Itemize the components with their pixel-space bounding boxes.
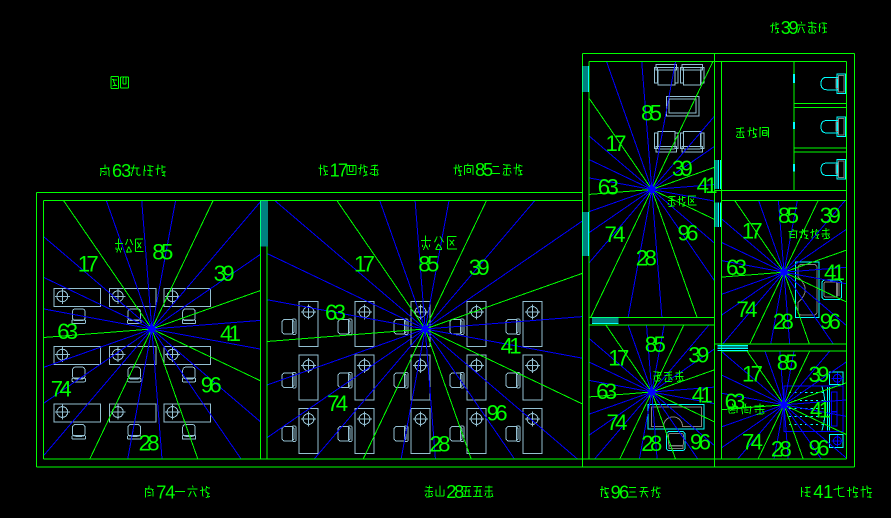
svg-text:39: 39 <box>214 261 235 286</box>
svg-text:28: 28 <box>636 245 657 270</box>
svg-text:5: 5 <box>483 160 493 180</box>
svg-text:74: 74 <box>605 222 626 247</box>
svg-text:41: 41 <box>824 260 845 285</box>
svg-text:96: 96 <box>820 309 841 334</box>
svg-text:17: 17 <box>742 362 763 387</box>
svg-text:41: 41 <box>692 382 713 407</box>
svg-text:17: 17 <box>742 219 763 244</box>
svg-text:39: 39 <box>820 203 841 228</box>
svg-text:74: 74 <box>51 377 72 402</box>
svg-text:28: 28 <box>771 437 792 462</box>
svg-text:85: 85 <box>418 251 439 276</box>
svg-text:28: 28 <box>139 430 160 455</box>
svg-text:17: 17 <box>608 346 629 371</box>
svg-text:28: 28 <box>430 431 451 456</box>
svg-text:74: 74 <box>607 410 628 435</box>
svg-text:96: 96 <box>678 221 699 246</box>
svg-text:8: 8 <box>454 482 464 502</box>
svg-text:3: 3 <box>121 161 131 181</box>
svg-text:39: 39 <box>809 362 830 387</box>
svg-text:41: 41 <box>220 321 241 346</box>
svg-text:96: 96 <box>487 401 508 426</box>
svg-text:96: 96 <box>809 435 830 460</box>
svg-text:85: 85 <box>645 332 666 357</box>
svg-text:28: 28 <box>773 309 794 334</box>
svg-text:4: 4 <box>813 482 823 502</box>
svg-text:17: 17 <box>78 252 99 277</box>
svg-text:1: 1 <box>823 482 833 502</box>
svg-text:63: 63 <box>598 174 619 199</box>
svg-text:74: 74 <box>737 297 758 322</box>
svg-text:85: 85 <box>778 203 799 228</box>
svg-text:96: 96 <box>201 372 222 397</box>
svg-text:39: 39 <box>672 156 693 181</box>
svg-text:39: 39 <box>688 342 709 367</box>
svg-text:4: 4 <box>165 482 175 502</box>
svg-text:17: 17 <box>606 131 627 156</box>
svg-text:41: 41 <box>501 334 522 359</box>
svg-text:39: 39 <box>469 255 490 280</box>
svg-text:63: 63 <box>57 319 78 344</box>
svg-text:74: 74 <box>327 391 348 416</box>
svg-text:63: 63 <box>726 255 747 280</box>
svg-text:41: 41 <box>697 173 718 198</box>
svg-text:74: 74 <box>742 430 763 455</box>
svg-text:85: 85 <box>152 240 173 265</box>
svg-text:96: 96 <box>690 429 711 454</box>
svg-text:9: 9 <box>789 18 799 38</box>
svg-text:28: 28 <box>641 431 662 456</box>
svg-text:85: 85 <box>641 100 662 125</box>
svg-text:63: 63 <box>596 379 617 404</box>
svg-text:6: 6 <box>619 483 629 503</box>
svg-text:85: 85 <box>777 350 798 375</box>
svg-text:63: 63 <box>325 300 346 325</box>
svg-text:17: 17 <box>354 251 375 276</box>
svg-text:41: 41 <box>810 398 831 423</box>
